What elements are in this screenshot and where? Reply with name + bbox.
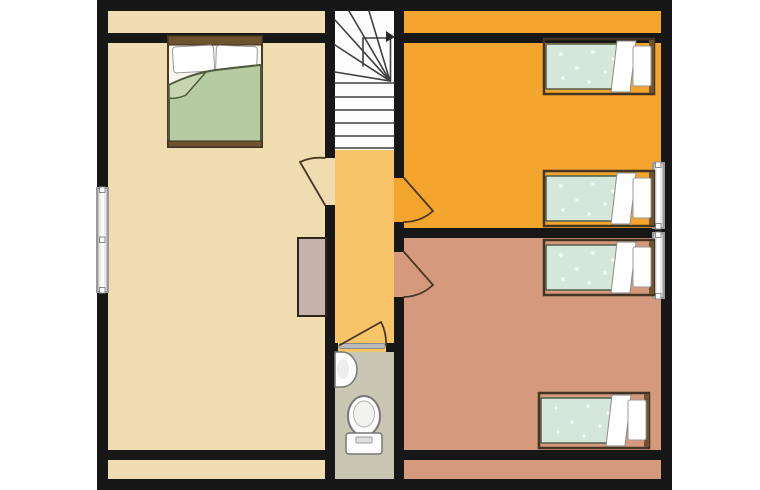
single-bed-orange-bottom [544, 171, 654, 226]
window-left-wall [96, 187, 109, 293]
double-bed-footboard [168, 141, 262, 147]
door-opening-salmon-bedroom [394, 252, 404, 297]
sink-bowl [337, 359, 349, 379]
toilet-flush-button [356, 437, 372, 443]
floor-plan-page [0, 0, 760, 490]
door-leaf-bathroom [339, 344, 385, 349]
single-bed-salmon-bottom [539, 393, 649, 448]
wardrobe [298, 238, 326, 316]
single-bed-orange-top [544, 39, 654, 94]
door-opening-orange-bedroom [394, 178, 404, 222]
double-bed-headboard [168, 36, 262, 45]
double-bed [168, 36, 262, 147]
floor-plan-canvas [0, 0, 760, 490]
toilet [346, 396, 382, 454]
single-bed-salmon-top [544, 240, 654, 295]
top-left-strip [108, 11, 325, 33]
bottom-right-strip [404, 460, 661, 479]
toilet-seat [354, 401, 375, 427]
bottom-left-strip [108, 460, 325, 479]
double-bed-pillow-left [172, 45, 214, 73]
door-opening-left-bedroom [325, 158, 335, 205]
room-hallway [335, 150, 394, 343]
top-right-strip [404, 11, 661, 33]
